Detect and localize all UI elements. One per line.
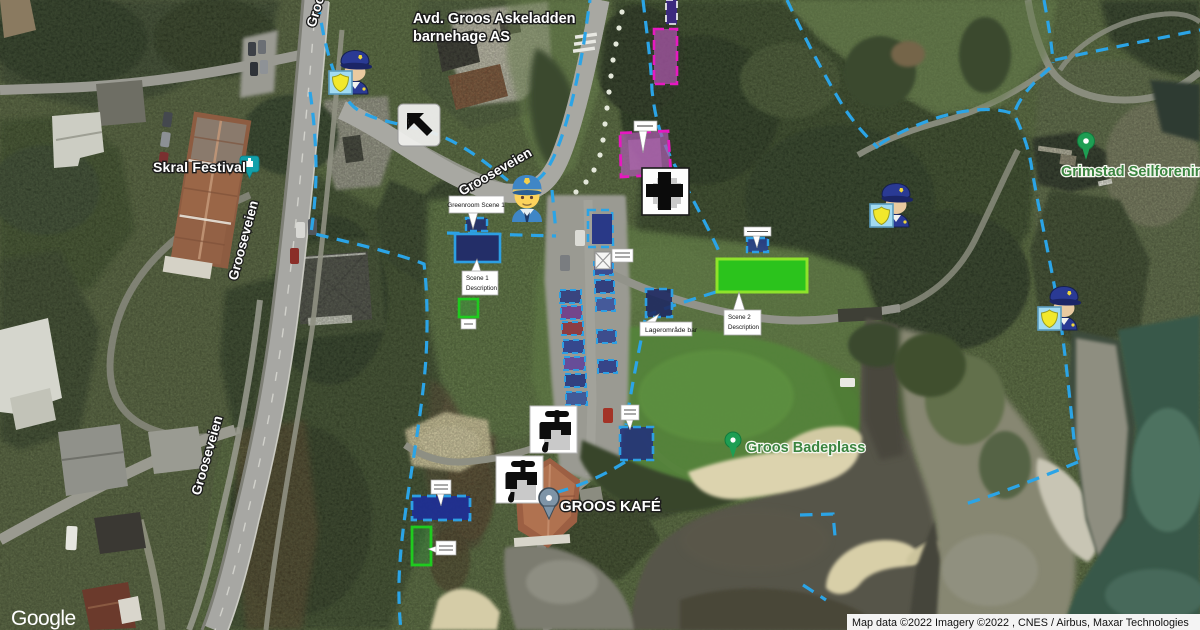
svg-text:Google: Google <box>11 607 76 630</box>
svg-text:barnehage AS: barnehage AS <box>413 29 510 45</box>
svg-text:Avd. Groos Askeladden: Avd. Groos Askeladden <box>413 11 576 27</box>
svg-text:Greenroom Scene 1: Greenroom Scene 1 <box>447 202 505 209</box>
svg-text:GROOS KAFÉ: GROOS KAFÉ <box>560 498 661 515</box>
svg-text:Scene 1: Scene 1 <box>466 275 489 282</box>
svg-text:Description: Description <box>466 285 498 292</box>
svg-text:Map data ©2022 Imagery ©2022 ,: Map data ©2022 Imagery ©2022 , CNES / Ai… <box>852 617 1189 629</box>
svg-text:Scene 2: Scene 2 <box>728 314 751 321</box>
svg-text:Groos Badeplass: Groos Badeplass <box>746 440 865 456</box>
svg-text:Grimstad Seilforening: Grimstad Seilforening <box>1061 164 1200 180</box>
svg-text:Description: Description <box>728 324 760 331</box>
svg-text:Lagerområde bar: Lagerområde bar <box>645 326 698 334</box>
svg-text:Skral Festival: Skral Festival <box>153 159 246 175</box>
